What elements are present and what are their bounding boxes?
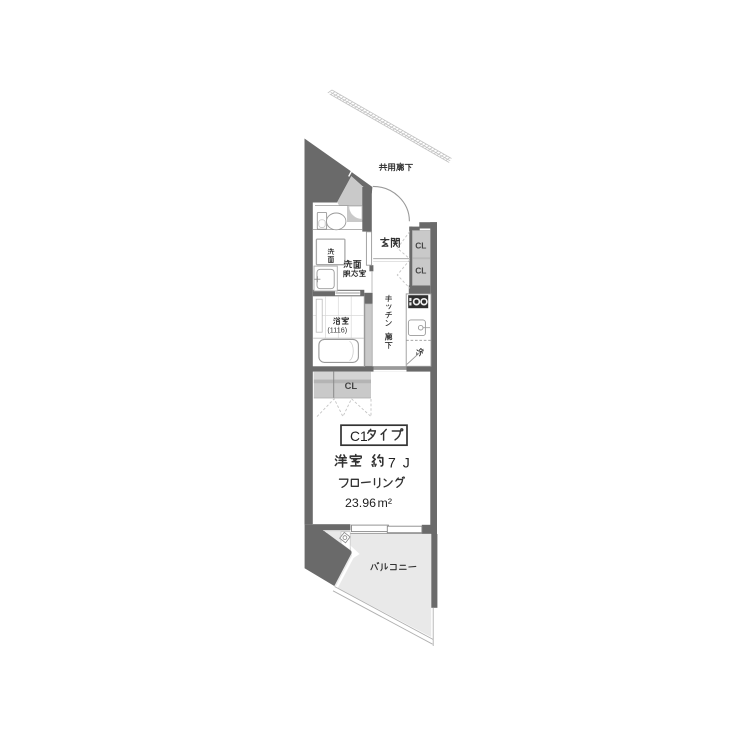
- svg-text:CL: CL: [415, 241, 426, 251]
- svg-text:m²: m²: [378, 496, 392, 510]
- svg-text:7J: 7J: [388, 454, 417, 470]
- svg-text:CL: CL: [345, 380, 358, 391]
- svg-text:CL: CL: [415, 266, 426, 276]
- svg-text:C1: C1: [350, 429, 368, 444]
- svg-text:23.96: 23.96: [345, 496, 376, 510]
- svg-text:(1116): (1116): [327, 326, 347, 335]
